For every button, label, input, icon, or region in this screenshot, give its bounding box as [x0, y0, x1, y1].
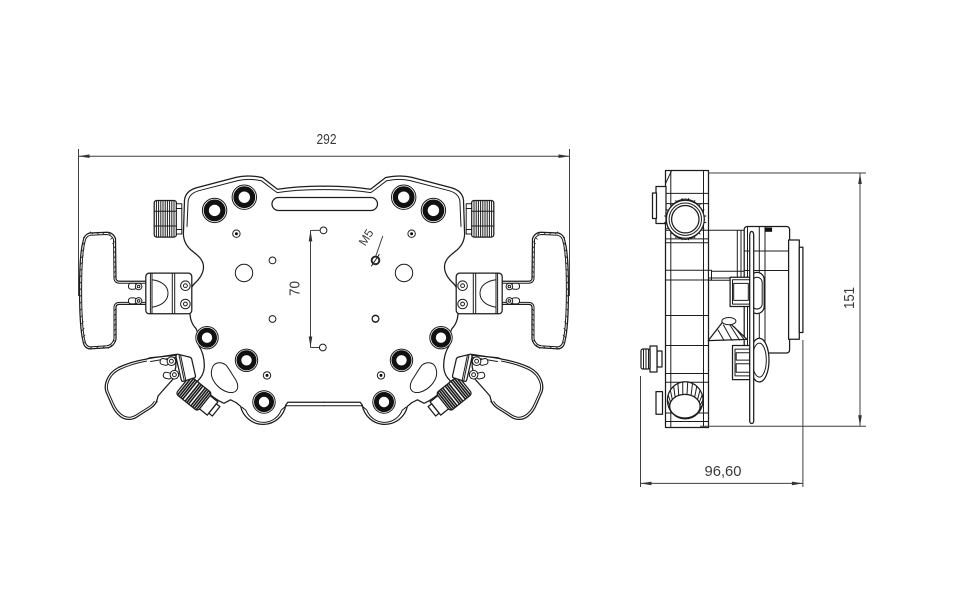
svg-text:96,60: 96,60 [705, 463, 742, 480]
svg-text:151: 151 [841, 287, 858, 309]
svg-text:70: 70 [287, 281, 304, 296]
svg-text:292: 292 [317, 131, 337, 148]
